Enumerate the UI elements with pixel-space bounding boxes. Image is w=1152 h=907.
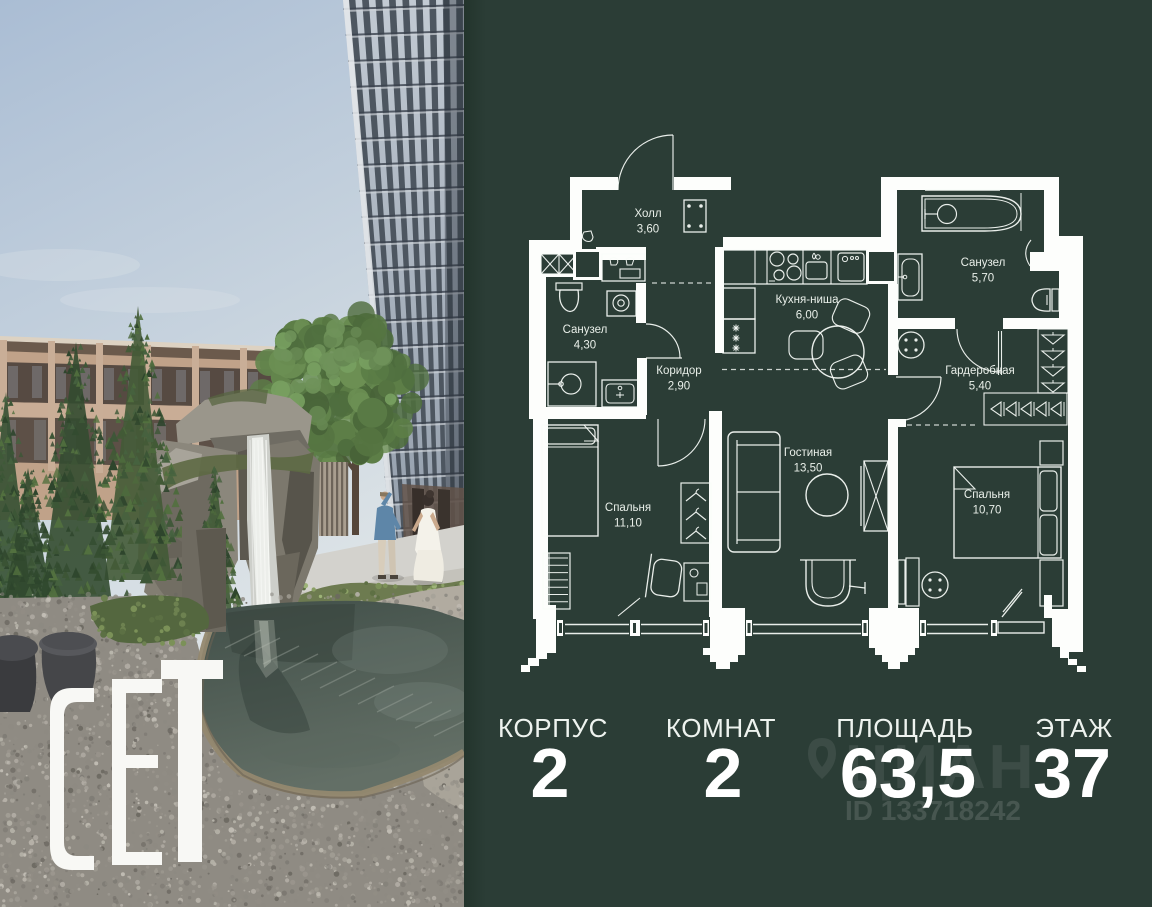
svg-text:11,10: 11,10 — [614, 518, 642, 530]
svg-text:4,30: 4,30 — [574, 340, 596, 352]
svg-text:5,70: 5,70 — [972, 273, 994, 285]
svg-text:Спальня: Спальня — [964, 489, 1010, 501]
svg-text:ЦИАН: ЦИАН — [845, 733, 1036, 802]
svg-text:Гостиная: Гостиная — [784, 447, 832, 459]
svg-text:2: 2 — [531, 734, 570, 812]
svg-text:Санузел: Санузел — [563, 324, 608, 336]
svg-text:37: 37 — [1033, 734, 1111, 812]
svg-text:Холл: Холл — [634, 208, 661, 220]
svg-text:ID 133718242: ID 133718242 — [845, 795, 1021, 826]
svg-text:Кухня-ниша: Кухня-ниша — [775, 294, 839, 306]
svg-text:13,50: 13,50 — [794, 463, 823, 475]
svg-text:Гардеробная: Гардеробная — [945, 365, 1015, 377]
svg-text:2: 2 — [704, 734, 743, 812]
svg-text:Спальня: Спальня — [605, 502, 651, 514]
svg-text:3,60: 3,60 — [637, 224, 659, 236]
svg-text:Санузел: Санузел — [961, 257, 1006, 269]
svg-text:5,40: 5,40 — [969, 381, 991, 393]
svg-text:6,00: 6,00 — [796, 310, 818, 322]
svg-text:Коридор: Коридор — [656, 365, 701, 377]
svg-text:10,70: 10,70 — [973, 505, 1002, 517]
svg-text:2,90: 2,90 — [668, 381, 690, 393]
